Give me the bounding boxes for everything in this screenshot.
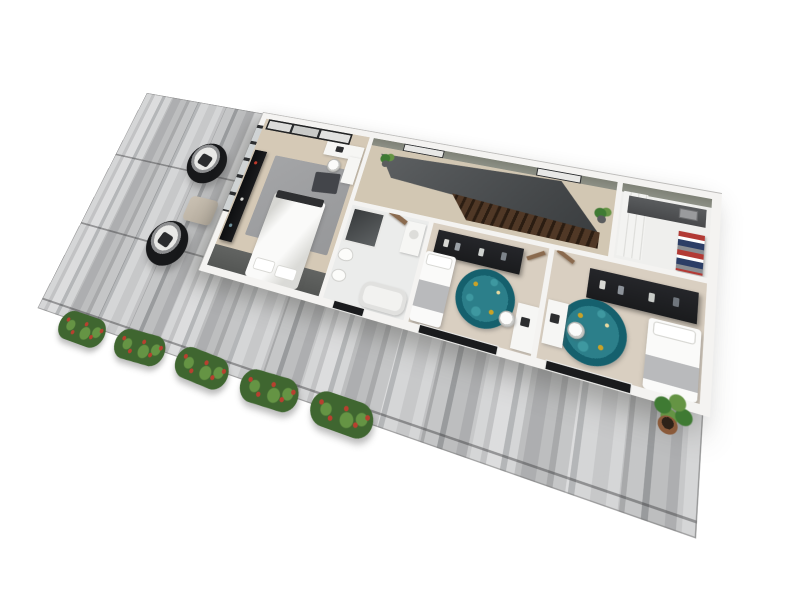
clothes xyxy=(454,242,461,251)
master-desk-return xyxy=(340,157,361,185)
decor-dot xyxy=(228,223,232,227)
room-walk-in-closet xyxy=(614,183,712,278)
master-throw-blanket xyxy=(311,172,341,194)
shower-enclosure xyxy=(343,207,386,249)
bedroom2-door xyxy=(526,251,545,261)
clothes xyxy=(599,280,606,290)
bedroom3-door xyxy=(557,250,575,264)
bidet xyxy=(330,267,348,283)
clothes xyxy=(478,248,485,257)
clothes xyxy=(443,239,450,248)
clothes xyxy=(500,252,507,261)
chair-cushion xyxy=(197,153,213,168)
master-sliding-closet xyxy=(265,119,353,145)
decor-dot xyxy=(240,197,244,201)
decor-dot xyxy=(254,161,258,165)
render-canvas xyxy=(0,0,800,600)
clothes xyxy=(648,292,655,302)
clothes xyxy=(617,285,624,295)
chair-cushion xyxy=(157,231,174,248)
bedroom2-desk xyxy=(510,303,539,354)
toilet xyxy=(336,246,355,263)
folded-clothes-stack xyxy=(676,231,705,276)
ground-plane xyxy=(198,112,722,417)
clothes xyxy=(673,297,680,307)
hall-window-1 xyxy=(403,144,445,159)
